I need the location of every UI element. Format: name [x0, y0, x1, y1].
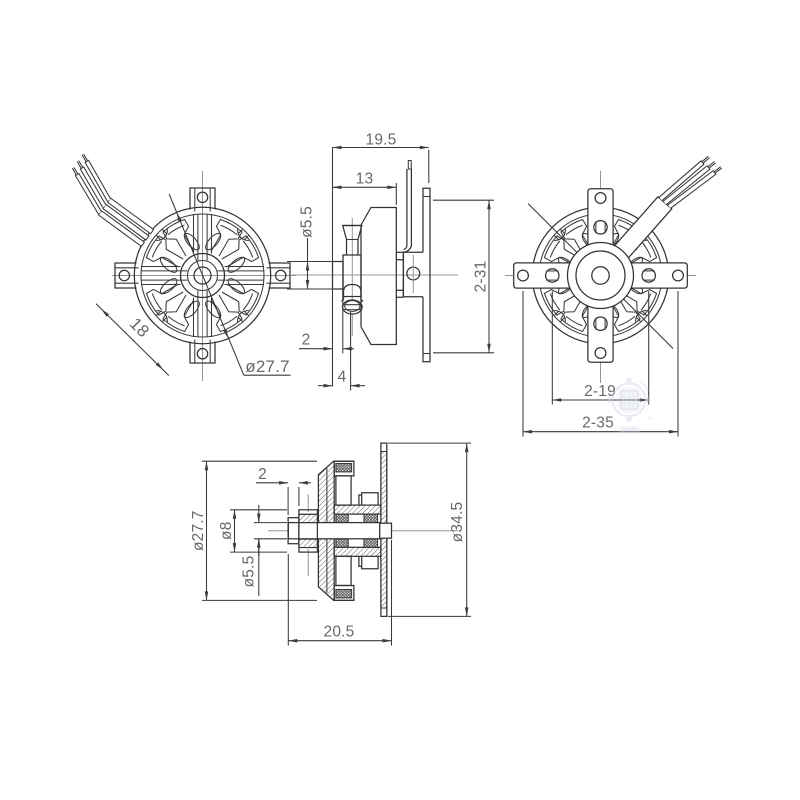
svg-text:ø34.5: ø34.5 — [449, 502, 466, 543]
svg-text:2-35: 2-35 — [582, 415, 614, 432]
svg-text:19.5: 19.5 — [366, 132, 397, 149]
svg-text:ø27.7: ø27.7 — [245, 357, 289, 376]
svg-text:20.5: 20.5 — [324, 624, 355, 641]
svg-text:ø27.7: ø27.7 — [190, 510, 207, 551]
svg-text:2: 2 — [302, 332, 311, 349]
svg-text:2: 2 — [258, 466, 267, 483]
svg-text:4: 4 — [338, 369, 347, 386]
svg-text:ø8: ø8 — [218, 521, 235, 540]
svg-text:13: 13 — [356, 171, 374, 188]
svg-text:ø5.5: ø5.5 — [299, 206, 316, 238]
svg-text:2-31: 2-31 — [473, 261, 490, 293]
svg-text:ø5.5: ø5.5 — [241, 556, 258, 588]
svg-text:WCS: WCS — [623, 429, 636, 435]
